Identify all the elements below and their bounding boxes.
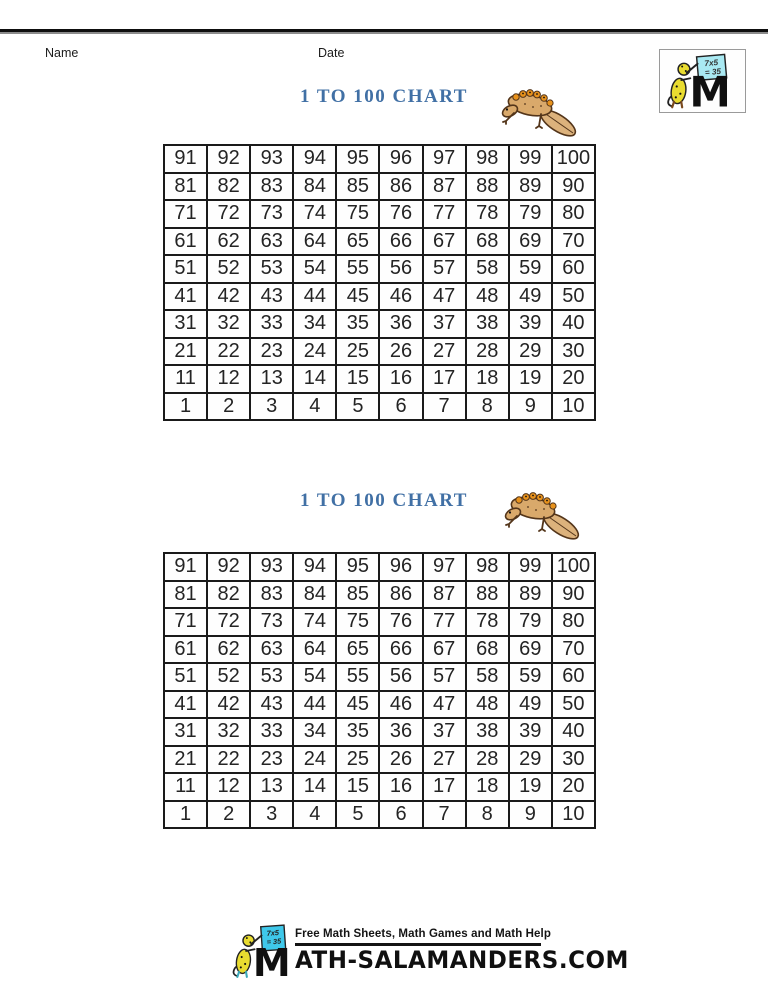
chart-cell: 85 [336, 173, 379, 201]
footer-divider-rule [295, 943, 541, 946]
newt-illustration-1 [499, 80, 579, 140]
chart-cell: 29 [509, 746, 552, 774]
chart-cell: 8 [466, 801, 509, 829]
footer: 7x5 = 35 M Free Math Sheets, Math Games … [0, 916, 768, 982]
chart-cell: 52 [207, 663, 250, 691]
chart-cell: 53 [250, 663, 293, 691]
chart-cell: 19 [509, 365, 552, 393]
chart-cell: 54 [293, 255, 336, 283]
chart-cell: 75 [336, 200, 379, 228]
chart-cell: 86 [379, 173, 422, 201]
chart-cell: 80 [552, 608, 595, 636]
chart-cell: 56 [379, 255, 422, 283]
chart-cell: 65 [336, 636, 379, 664]
chart-cell: 93 [250, 145, 293, 173]
chart-cell: 75 [336, 608, 379, 636]
top-divider-rule [0, 29, 768, 34]
chart-cell: 45 [336, 691, 379, 719]
chart-cell: 78 [466, 200, 509, 228]
chart-cell: 90 [552, 173, 595, 201]
chart-cell: 53 [250, 255, 293, 283]
chart-cell: 58 [466, 663, 509, 691]
chart-cell: 90 [552, 581, 595, 609]
chart-cell: 78 [466, 608, 509, 636]
chart-cell: 21 [164, 338, 207, 366]
chart-cell: 76 [379, 200, 422, 228]
chart-cell: 43 [250, 283, 293, 311]
chart-row: 31323334353637383940 [164, 718, 595, 746]
chart-row: 61626364656667686970 [164, 228, 595, 256]
chart-cell: 97 [423, 145, 466, 173]
chart-cell: 27 [423, 338, 466, 366]
chart-row: 61626364656667686970 [164, 636, 595, 664]
chart-cell: 22 [207, 338, 250, 366]
chart-cell: 29 [509, 338, 552, 366]
chart-cell: 88 [466, 173, 509, 201]
chart-row: 919293949596979899100 [164, 145, 595, 173]
chart-cell: 28 [466, 338, 509, 366]
chart-cell: 6 [379, 801, 422, 829]
chart-cell: 88 [466, 581, 509, 609]
chart-cell: 6 [379, 393, 422, 421]
chart-row: 21222324252627282930 [164, 338, 595, 366]
worksheet-page: Name Date 7x5 = 35 M [0, 0, 768, 994]
chart-cell: 47 [423, 691, 466, 719]
chart-cell: 98 [466, 553, 509, 581]
chart-cell: 86 [379, 581, 422, 609]
chart-cell: 45 [336, 283, 379, 311]
chart-cell: 94 [293, 145, 336, 173]
hundred-chart-grid-1: 9192939495969798991008182838485868788899… [163, 144, 596, 421]
chart-cell: 39 [509, 310, 552, 338]
chart-cell: 18 [466, 773, 509, 801]
chart-cell: 24 [293, 338, 336, 366]
newt-illustration-2 [502, 483, 582, 543]
chart-cell: 81 [164, 173, 207, 201]
chart-cell: 96 [379, 553, 422, 581]
chart-cell: 63 [250, 636, 293, 664]
chart-cell: 77 [423, 200, 466, 228]
chart-cell: 99 [509, 145, 552, 173]
chart-cell: 36 [379, 310, 422, 338]
chart-cell: 15 [336, 365, 379, 393]
chart-cell: 70 [552, 636, 595, 664]
chart-cell: 9 [509, 801, 552, 829]
chart-cell: 38 [466, 310, 509, 338]
chart-cell: 49 [509, 283, 552, 311]
chart-cell: 15 [336, 773, 379, 801]
chart-cell: 13 [250, 773, 293, 801]
chart-cell: 94 [293, 553, 336, 581]
chart-cell: 69 [509, 636, 552, 664]
chart-cell: 69 [509, 228, 552, 256]
chart-cell: 61 [164, 228, 207, 256]
chart-cell: 4 [293, 393, 336, 421]
chart-cell: 72 [207, 200, 250, 228]
chart-cell: 57 [423, 255, 466, 283]
chart-cell: 68 [466, 228, 509, 256]
chart-cell: 72 [207, 608, 250, 636]
chart-cell: 77 [423, 608, 466, 636]
chart-cell: 38 [466, 718, 509, 746]
chart-cell: 23 [250, 338, 293, 366]
chart-cell: 68 [466, 636, 509, 664]
chart-cell: 16 [379, 773, 422, 801]
chart-cell: 11 [164, 365, 207, 393]
chart-cell: 22 [207, 746, 250, 774]
chart-cell: 37 [423, 718, 466, 746]
chart-cell: 58 [466, 255, 509, 283]
chart-cell: 89 [509, 173, 552, 201]
chart-row: 41424344454647484950 [164, 691, 595, 719]
chart-cell: 96 [379, 145, 422, 173]
chart-cell: 40 [552, 310, 595, 338]
chart-cell: 2 [207, 393, 250, 421]
chart-row: 919293949596979899100 [164, 553, 595, 581]
chart-cell: 62 [207, 636, 250, 664]
chart-cell: 67 [423, 228, 466, 256]
chart-cell: 74 [293, 200, 336, 228]
chart-cell: 34 [293, 718, 336, 746]
chart-cell: 5 [336, 393, 379, 421]
chart-cell: 41 [164, 691, 207, 719]
chart-cell: 51 [164, 255, 207, 283]
chart-cell: 74 [293, 608, 336, 636]
chart-cell: 12 [207, 773, 250, 801]
site-wordmark: ATH-SALAMANDERS.COM [295, 948, 541, 973]
chart-cell: 100 [552, 145, 595, 173]
chart-cell: 30 [552, 746, 595, 774]
chart-cell: 42 [207, 283, 250, 311]
chart-cell: 4 [293, 801, 336, 829]
chart-cell: 18 [466, 365, 509, 393]
chart-cell: 19 [509, 773, 552, 801]
chart-cell: 1 [164, 801, 207, 829]
chart-cell: 70 [552, 228, 595, 256]
chart-cell: 42 [207, 691, 250, 719]
chart-cell: 82 [207, 173, 250, 201]
chart-cell: 25 [336, 338, 379, 366]
chart-cell: 12 [207, 365, 250, 393]
chart-cell: 39 [509, 718, 552, 746]
chart-cell: 79 [509, 200, 552, 228]
chart-row: 81828384858687888990 [164, 581, 595, 609]
chart-cell: 55 [336, 255, 379, 283]
chart-cell: 91 [164, 145, 207, 173]
chart-cell: 71 [164, 608, 207, 636]
chart-row: 41424344454647484950 [164, 283, 595, 311]
chart-cell: 83 [250, 173, 293, 201]
chart-cell: 54 [293, 663, 336, 691]
chart-cell: 49 [509, 691, 552, 719]
chart-row: 71727374757677787980 [164, 200, 595, 228]
chart-row: 51525354555657585960 [164, 255, 595, 283]
chart-cell: 44 [293, 691, 336, 719]
chart-cell: 21 [164, 746, 207, 774]
chart-cell: 66 [379, 228, 422, 256]
chart-cell: 73 [250, 608, 293, 636]
chart-cell: 76 [379, 608, 422, 636]
chart-cell: 65 [336, 228, 379, 256]
chart-cell: 3 [250, 801, 293, 829]
footer-tagline: Free Math Sheets, Math Games and Math He… [295, 928, 541, 940]
chart-cell: 50 [552, 283, 595, 311]
chart-cell: 41 [164, 283, 207, 311]
chart-cell: 66 [379, 636, 422, 664]
chart-cell: 84 [293, 173, 336, 201]
chart-cell: 16 [379, 365, 422, 393]
chart-cell: 60 [552, 255, 595, 283]
chart-cell: 91 [164, 553, 207, 581]
chart-cell: 95 [336, 553, 379, 581]
chart-cell: 9 [509, 393, 552, 421]
chart-cell: 20 [552, 773, 595, 801]
chart-cell: 37 [423, 310, 466, 338]
chart-row: 31323334353637383940 [164, 310, 595, 338]
chart-row: 51525354555657585960 [164, 663, 595, 691]
chart-cell: 82 [207, 581, 250, 609]
chart-cell: 93 [250, 553, 293, 581]
chart-cell: 28 [466, 746, 509, 774]
chart-cell: 47 [423, 283, 466, 311]
chart-cell: 34 [293, 310, 336, 338]
hundred-chart-grid-2: 9192939495969798991008182838485868788899… [163, 552, 596, 829]
footer-text-block: Free Math Sheets, Math Games and Math He… [295, 916, 541, 972]
chart-cell: 8 [466, 393, 509, 421]
chart-cell: 17 [423, 773, 466, 801]
chart-row: 81828384858687888990 [164, 173, 595, 201]
chart-cell: 1 [164, 393, 207, 421]
chart-cell: 25 [336, 746, 379, 774]
chart-cell: 81 [164, 581, 207, 609]
chart-cell: 35 [336, 718, 379, 746]
chart-cell: 71 [164, 200, 207, 228]
chart-cell: 7 [423, 393, 466, 421]
chart-cell: 14 [293, 773, 336, 801]
chart-cell: 36 [379, 718, 422, 746]
chart-cell: 46 [379, 283, 422, 311]
chart-cell: 64 [293, 228, 336, 256]
chart-cell: 89 [509, 581, 552, 609]
chart-cell: 84 [293, 581, 336, 609]
chart-cell: 98 [466, 145, 509, 173]
chart-cell: 59 [509, 663, 552, 691]
chart-cell: 33 [250, 718, 293, 746]
chart-cell: 85 [336, 581, 379, 609]
chart-cell: 20 [552, 365, 595, 393]
chart-cell: 2 [207, 801, 250, 829]
chart-cell: 60 [552, 663, 595, 691]
chart-title-1: 1 TO 100 CHART [0, 86, 768, 108]
chart-cell: 33 [250, 310, 293, 338]
chart-cell: 51 [164, 663, 207, 691]
date-label: Date [318, 46, 344, 60]
chart-cell: 7 [423, 801, 466, 829]
chart-cell: 30 [552, 338, 595, 366]
chart-row: 71727374757677787980 [164, 608, 595, 636]
chart-cell: 92 [207, 553, 250, 581]
chart-cell: 50 [552, 691, 595, 719]
chart-cell: 55 [336, 663, 379, 691]
chart-cell: 10 [552, 393, 595, 421]
chart-row: 11121314151617181920 [164, 365, 595, 393]
chart-cell: 31 [164, 718, 207, 746]
chart-cell: 17 [423, 365, 466, 393]
chart-cell: 32 [207, 718, 250, 746]
chart-cell: 80 [552, 200, 595, 228]
chart-cell: 32 [207, 310, 250, 338]
chart-cell: 46 [379, 691, 422, 719]
chart-row: 21222324252627282930 [164, 746, 595, 774]
chart-cell: 79 [509, 608, 552, 636]
chart-cell: 67 [423, 636, 466, 664]
chart-cell: 95 [336, 145, 379, 173]
chart-cell: 23 [250, 746, 293, 774]
chart-cell: 26 [379, 338, 422, 366]
chart-cell: 100 [552, 553, 595, 581]
chart-row: 12345678910 [164, 801, 595, 829]
chart-cell: 27 [423, 746, 466, 774]
logo-m-letter: M [253, 941, 291, 982]
chart-cell: 87 [423, 173, 466, 201]
chart-cell: 56 [379, 663, 422, 691]
chart-cell: 92 [207, 145, 250, 173]
chart-cell: 14 [293, 365, 336, 393]
salamander-easel-icon: 7x5 = 35 M [227, 920, 303, 982]
chart-cell: 48 [466, 283, 509, 311]
chart-row: 11121314151617181920 [164, 773, 595, 801]
name-label: Name [45, 46, 78, 60]
chart-cell: 13 [250, 365, 293, 393]
chart-cell: 57 [423, 663, 466, 691]
chart-cell: 52 [207, 255, 250, 283]
chart-cell: 3 [250, 393, 293, 421]
chart-cell: 43 [250, 691, 293, 719]
chart-cell: 11 [164, 773, 207, 801]
chart-cell: 62 [207, 228, 250, 256]
chart-row: 12345678910 [164, 393, 595, 421]
chart-cell: 10 [552, 801, 595, 829]
chart-title-2: 1 TO 100 CHART [0, 490, 768, 512]
chart-cell: 99 [509, 553, 552, 581]
chart-cell: 73 [250, 200, 293, 228]
chart-cell: 26 [379, 746, 422, 774]
chart-cell: 87 [423, 581, 466, 609]
chart-cell: 5 [336, 801, 379, 829]
chart-cell: 24 [293, 746, 336, 774]
chart-cell: 59 [509, 255, 552, 283]
chart-cell: 48 [466, 691, 509, 719]
chart-cell: 97 [423, 553, 466, 581]
chart-cell: 44 [293, 283, 336, 311]
chart-cell: 83 [250, 581, 293, 609]
chart-cell: 63 [250, 228, 293, 256]
chart-cell: 61 [164, 636, 207, 664]
chart-cell: 31 [164, 310, 207, 338]
chart-cell: 64 [293, 636, 336, 664]
chart-cell: 35 [336, 310, 379, 338]
chart-cell: 40 [552, 718, 595, 746]
